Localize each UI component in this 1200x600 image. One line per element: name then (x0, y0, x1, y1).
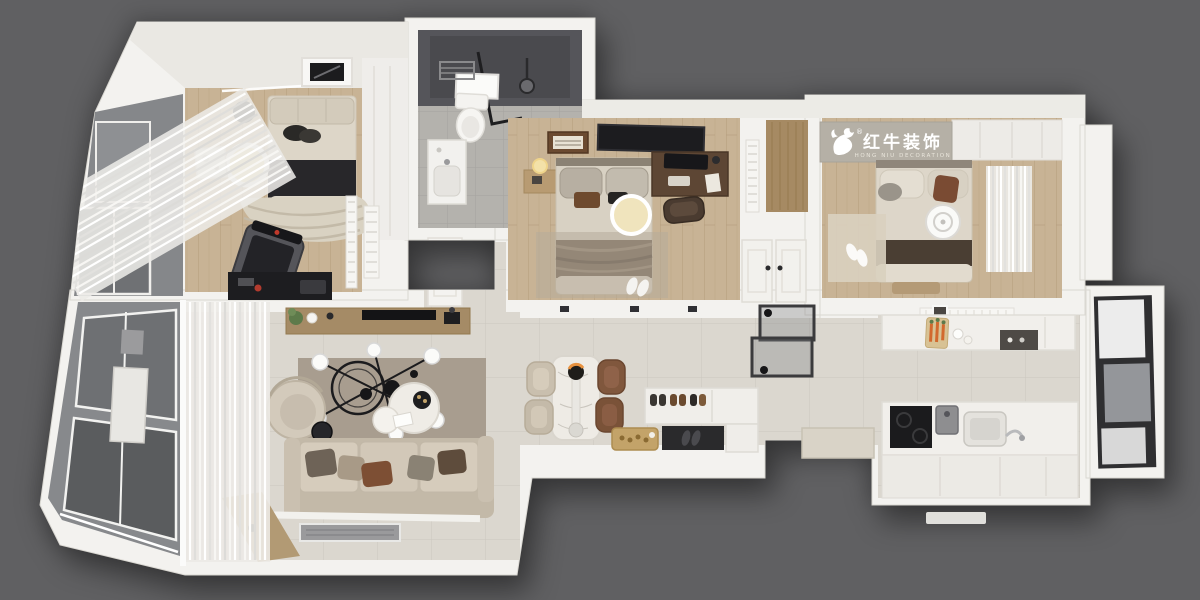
armrest (284, 438, 300, 516)
table-lamp-glow (533, 159, 547, 173)
bowl (953, 329, 963, 339)
wall-art-frame (302, 58, 352, 86)
ceiling-slab (805, 95, 1085, 118)
vanity-sink (428, 140, 466, 204)
desk-chair (663, 196, 705, 224)
desk (652, 152, 728, 196)
base-cabinets (882, 455, 1078, 498)
radiator (746, 140, 759, 212)
dining-table (552, 356, 600, 440)
glass-panel (1098, 299, 1146, 358)
cutting-board (925, 317, 949, 348)
lower-counter (882, 402, 1078, 455)
glass-panel (1104, 363, 1152, 422)
entry-doorstep (802, 428, 874, 458)
tv (362, 310, 436, 320)
sofa (284, 436, 494, 518)
upper-counter (882, 315, 1075, 350)
dark-blanket (876, 240, 972, 266)
brass-tray (612, 428, 658, 450)
open-shelf (1000, 330, 1038, 350)
window-dark (598, 125, 705, 153)
window-sill-highlight (180, 300, 186, 566)
coffee-machine (936, 406, 958, 434)
tv-console (286, 307, 470, 334)
outside-threshold (926, 512, 986, 524)
bedroom-3: ® 红牛装饰 HONG NIU DECORATION (820, 118, 1062, 298)
registered-mark: ® (856, 128, 863, 136)
floorplan-render: ® 红牛装饰 HONG NIU DECORATION (0, 0, 1200, 600)
rug (828, 214, 886, 282)
papers (705, 173, 721, 193)
long-artwork (300, 524, 400, 541)
logo-text-zh: 红牛装饰 (863, 132, 943, 153)
glass-panel (1101, 427, 1146, 464)
shower-floor (430, 36, 570, 98)
ceiling-light (926, 205, 960, 239)
logo-text-en: HONG NIU DECORATION (855, 153, 952, 159)
armrest (478, 436, 494, 502)
keyboard (668, 176, 690, 186)
sheer-curtains (986, 166, 1032, 272)
apartment-top-view: ® 红牛装饰 HONG NIU DECORATION (0, 0, 1200, 600)
kitchen-glass-door (752, 306, 814, 376)
bed-end-bench (892, 282, 940, 294)
brand-logo: ® 红牛装饰 HONG NIU DECORATION (820, 122, 952, 162)
sheer-curtains (186, 302, 270, 562)
accent-cushion (574, 192, 600, 208)
round-cushion (878, 183, 902, 201)
wardrobe (952, 120, 1062, 160)
right-balcony (1094, 295, 1156, 468)
black-tray (413, 391, 431, 409)
pendant-light (612, 196, 650, 234)
accent-cushion (932, 174, 959, 203)
desk-dark (228, 272, 332, 300)
vase (307, 313, 317, 323)
monitor (664, 153, 708, 170)
wall-art-frame (548, 132, 588, 153)
cooktop (890, 406, 932, 448)
